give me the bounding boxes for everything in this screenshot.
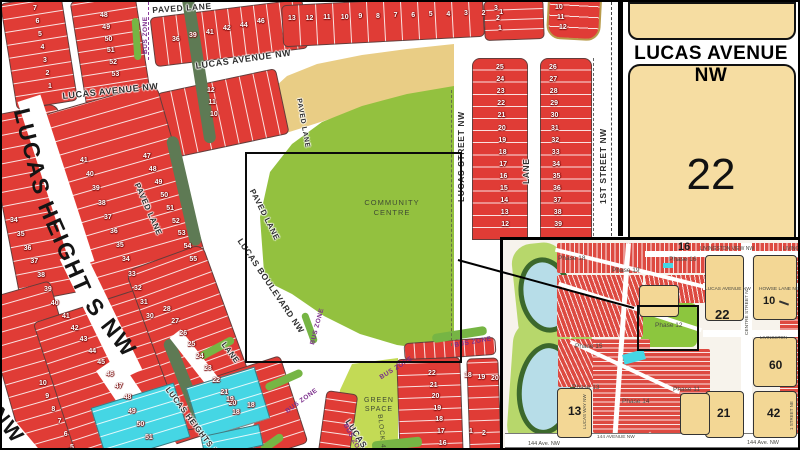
- livingston-view-label: LIVINGSTON VIEW NW: [700, 247, 754, 252]
- lot-number: 49: [102, 24, 110, 31]
- lot-number: 36: [24, 245, 32, 252]
- lot-number: 16: [500, 173, 508, 180]
- lot-number: 3: [43, 57, 47, 64]
- lot-number: 9: [358, 13, 362, 20]
- lot-number: 7: [58, 418, 62, 425]
- lot-number: 19: [226, 396, 234, 403]
- lot-number: 45: [97, 359, 105, 366]
- first-street: 1ST STREET NW: [599, 128, 608, 204]
- lot-number: 16: [439, 440, 447, 447]
- lot-number: 22: [428, 370, 436, 377]
- lot-number: 22: [497, 100, 505, 107]
- lot-number: 51: [166, 205, 174, 212]
- panel-tan-top: [628, 2, 796, 40]
- lot-number: 12: [501, 221, 509, 228]
- lot-number: 46: [106, 371, 114, 378]
- inset-cyan: [663, 263, 673, 268]
- lot-number: 40: [86, 171, 94, 178]
- lot-number: 9: [45, 393, 49, 400]
- lot-number: 21: [498, 112, 506, 119]
- lucas-way-label: LUCAS WAY NW: [583, 394, 588, 429]
- lot-number: 11: [209, 99, 216, 106]
- lot-number: 18: [464, 372, 472, 379]
- lot-number: 3: [464, 10, 468, 17]
- lot-number: 33: [552, 149, 560, 156]
- lot-number: 17: [437, 428, 445, 435]
- map-block: [281, 0, 485, 47]
- lot-number: 42: [223, 25, 231, 32]
- inset-block-10: 10: [763, 296, 775, 307]
- lot-number: 50: [105, 36, 113, 43]
- lot-number: 27: [171, 318, 179, 325]
- inset-block-13: 13: [568, 405, 581, 417]
- lot-number: 53: [178, 230, 186, 237]
- livingston-truncated: LIVINGS: [783, 247, 800, 252]
- lot-number: 30: [146, 313, 154, 320]
- panel-avenue-label: LUCAS AVENUE NW: [622, 43, 800, 87]
- lot-number: 39: [92, 185, 100, 192]
- lot-number: 41: [80, 157, 88, 164]
- lot-number: 4: [446, 11, 450, 18]
- livingston-small: LIVINGSTON: [760, 336, 787, 341]
- inset-block-22: 22: [715, 308, 729, 321]
- lot-number: 32: [551, 137, 559, 144]
- lot-number: 54: [184, 243, 192, 250]
- lot-number: 22: [212, 377, 220, 384]
- lot-number: 31: [551, 125, 559, 132]
- lot-number: 48: [149, 166, 157, 173]
- lot-number: 7: [33, 5, 37, 12]
- lot-number: 10: [210, 111, 218, 118]
- lot-number: 37: [104, 214, 112, 221]
- ave-144-right: 144 Ave. NW: [747, 441, 779, 447]
- lot-number: 17: [499, 161, 507, 168]
- lot-number: 19: [433, 405, 441, 412]
- dash-line: [611, 2, 612, 236]
- lot-number: 55: [189, 256, 197, 263]
- lot-number: 50: [160, 192, 168, 199]
- lot-number: 7: [394, 12, 398, 19]
- lot-number: 18: [232, 409, 240, 416]
- ave-144-small: 144 AVENUE NW: [597, 436, 635, 441]
- lot-number: 18: [435, 416, 443, 423]
- lot-number: 41: [62, 313, 70, 320]
- lot-number: 42: [71, 325, 79, 332]
- lot-number: 25: [188, 341, 196, 348]
- lot-number: 26: [179, 330, 187, 337]
- lot-number: 1: [48, 83, 52, 90]
- lot-number: 19: [498, 137, 506, 144]
- lot-number: 3: [494, 5, 498, 12]
- lot-number: 19: [478, 374, 486, 381]
- lot-number: 12: [207, 87, 215, 94]
- lot-number: 29: [550, 100, 558, 107]
- lot-number: 52: [109, 59, 117, 66]
- lot-number: 41: [206, 29, 214, 36]
- lot-number: 1: [498, 25, 502, 32]
- phase-19-label: Phase 19: [612, 268, 639, 275]
- dash-line: [593, 58, 594, 236]
- ave-144-left: 144 Ave. NW: [528, 442, 560, 448]
- lot-number: 35: [17, 231, 25, 238]
- lot-number: 13: [288, 15, 296, 22]
- lot-number: 10: [341, 14, 349, 21]
- lot-number: 20: [491, 375, 499, 382]
- lot-number: 5: [429, 11, 433, 18]
- lot-number: 35: [553, 173, 561, 180]
- lot-number: 49: [128, 408, 136, 415]
- lot-number: 36: [172, 36, 180, 43]
- lot-number: 52: [172, 218, 180, 225]
- inset-block-60: 60: [769, 359, 782, 371]
- lot-number: 33: [128, 271, 136, 278]
- inset-overview-map: 16LIVINGSTON VIEW NWLIVINGSPhase 18Phase…: [500, 237, 800, 450]
- lot-number: 20: [432, 393, 440, 400]
- centre-street-label: CENTRE STREET N: [746, 290, 751, 335]
- lot-number: 4: [41, 44, 45, 51]
- lot-number: 32: [134, 285, 142, 292]
- lot-number: 34: [552, 161, 560, 168]
- lot-number: 40: [51, 300, 59, 307]
- lot-number: 35: [116, 242, 124, 249]
- lot-number: 28: [550, 88, 558, 95]
- lot-number: 50: [137, 421, 145, 428]
- lot-number: 30: [551, 112, 559, 119]
- lot-number: 39: [189, 32, 197, 39]
- lane-vertical: LANE: [522, 158, 531, 184]
- lot-number: 51: [145, 434, 153, 441]
- phase-15-label: Phase 15: [575, 344, 602, 351]
- lot-number: 23: [497, 88, 505, 95]
- phase-11-label: Phase 11: [673, 387, 700, 394]
- lot-number: 49: [155, 179, 163, 186]
- panel-divider: [618, 2, 623, 236]
- lot-number: 31: [140, 299, 148, 306]
- lot-number: 34: [10, 217, 18, 224]
- lot-number: 6: [411, 12, 415, 19]
- lot-number: 10: [555, 4, 563, 11]
- inset-block-21: 21: [717, 407, 730, 419]
- howse-lane-label: HOWSE LANE NE: [759, 288, 799, 293]
- lot-number: 47: [115, 383, 123, 390]
- lot-number: 21: [430, 382, 438, 389]
- panel-block-number: 22: [622, 150, 800, 200]
- lot-number: 27: [549, 76, 557, 83]
- lot-number: 26: [549, 64, 557, 71]
- tan-block: [680, 393, 710, 435]
- street-ne-label: 1 STREET NE: [790, 401, 795, 430]
- lot-number: 38: [37, 272, 45, 279]
- lot-number: 48: [124, 394, 132, 401]
- lot-number: 6: [64, 431, 68, 438]
- lot-number: 47: [143, 153, 151, 160]
- lot-number: 10: [39, 380, 47, 387]
- lot-number: 24: [196, 353, 204, 360]
- lot-number: 36: [553, 185, 561, 192]
- lot-number: 2: [496, 15, 500, 22]
- lot-number: 51: [107, 47, 115, 54]
- phase-14-label: Phase 14: [622, 399, 649, 406]
- callout-box-inset: [637, 305, 699, 351]
- lot-number: 15: [500, 185, 508, 192]
- lot-number: 48: [100, 12, 108, 19]
- lot-number: 25: [496, 64, 504, 71]
- lot-number: 2: [482, 10, 486, 17]
- lot-number: 20: [498, 125, 506, 132]
- lot-number: 13: [501, 209, 509, 216]
- phase-16-label: Phase 16: [669, 257, 696, 264]
- map-block: [483, 0, 544, 41]
- lot-number: 5: [38, 31, 42, 38]
- lot-number: 2: [482, 430, 486, 437]
- lot-number: 5: [70, 444, 74, 450]
- bus-zone-label: BUS ZONE: [143, 16, 150, 54]
- lot-number: 12: [306, 15, 314, 22]
- lot-number: 8: [376, 13, 380, 20]
- phase-13-label: Phase 13: [572, 385, 599, 392]
- lot-number: 1: [469, 428, 473, 435]
- lot-number: 44: [240, 22, 248, 29]
- lot-number: 37: [30, 258, 38, 265]
- lot-number: 23: [204, 365, 212, 372]
- lot-number: 34: [122, 256, 130, 263]
- lot-number: 43: [80, 336, 88, 343]
- lot-number: 11: [557, 14, 564, 21]
- callout-box-main: [245, 152, 462, 363]
- lot-number: 11: [323, 14, 330, 21]
- inset-block-42: 42: [767, 407, 780, 419]
- lot-number: 14: [500, 197, 508, 204]
- lot-number: 37: [553, 197, 561, 204]
- lucas-avenue-inset: LUCAS AVENUE NW: [705, 288, 751, 293]
- plat-map-canvas: 7654321484950515253363941424446131211109…: [0, 0, 800, 450]
- lot-number: 39: [554, 221, 562, 228]
- lot-number: 21: [220, 389, 228, 396]
- lot-number: 8: [51, 406, 55, 413]
- lot-number: 38: [554, 209, 562, 216]
- lot-number: 18: [499, 149, 507, 156]
- lot-number: 2: [46, 70, 50, 77]
- lot-number: 28: [163, 306, 171, 313]
- lot-number: 12: [559, 24, 567, 31]
- inset-block-16: 16: [678, 242, 690, 253]
- lot-number: 46: [257, 18, 265, 25]
- lot-number: 44: [88, 348, 96, 355]
- lot-number: 39: [44, 286, 52, 293]
- lot-number: 38: [98, 200, 106, 207]
- green-space-label: GREEN SPACE: [349, 396, 409, 415]
- lot-number: 6: [36, 18, 40, 25]
- lot-number: 18: [247, 402, 255, 409]
- phase-18-label: Phase 18: [558, 256, 585, 263]
- lot-number: 53: [112, 71, 120, 78]
- lot-number: 24: [496, 76, 504, 83]
- lot-number: 36: [110, 228, 118, 235]
- map-block: [540, 58, 592, 240]
